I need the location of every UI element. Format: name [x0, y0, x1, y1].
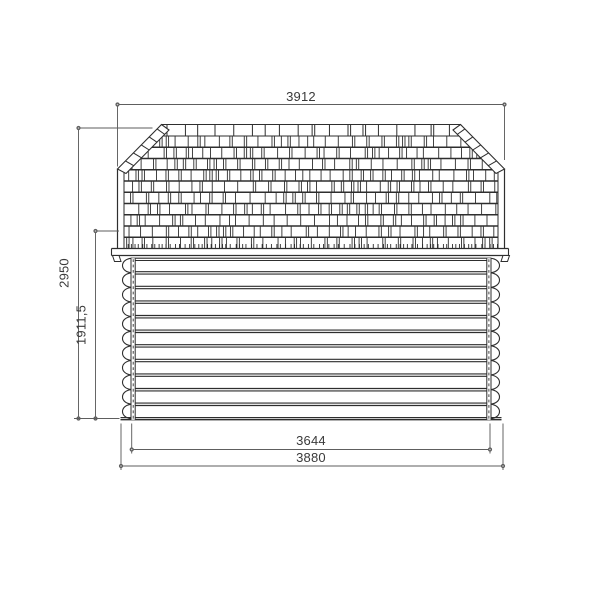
dim-label-wall-height: 1911,5 — [74, 305, 89, 345]
log-wall — [121, 258, 502, 420]
technical-drawing: 3912 2950 1911,5 3644 3880 — [0, 0, 600, 600]
dim-label-outer-width: 3880 — [296, 450, 326, 465]
dim-label-roof-width: 3912 — [286, 89, 316, 104]
shingle-roof — [112, 125, 511, 262]
drawing-page: 3912 2950 1911,5 3644 3880 — [0, 0, 600, 600]
dim-label-inner-width: 3644 — [296, 433, 326, 448]
dim-label-overall-height: 2950 — [57, 258, 72, 288]
